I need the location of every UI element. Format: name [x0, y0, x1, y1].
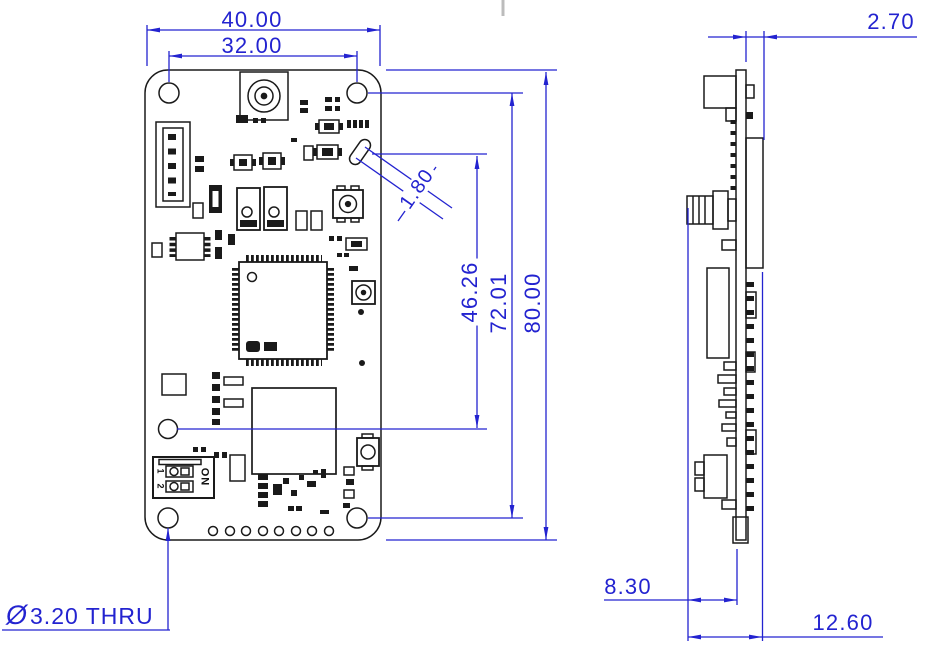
capacitors — [193, 185, 322, 230]
smd-components-left — [162, 372, 243, 425]
mounting-hole-bottom-left — [158, 508, 178, 528]
dim-hole-callout: Ø3.20 THRU — [6, 602, 154, 629]
side-left-components — [718, 120, 736, 509]
tact-switches — [230, 120, 343, 170]
side-right-block — [746, 138, 763, 268]
slot-hole — [347, 137, 372, 167]
dim-overall-depth: 12.60 — [812, 612, 873, 634]
mounting-hole-bottom-right — [347, 508, 367, 528]
side-view — [687, 70, 763, 543]
dip-pos1-label: 1 — [156, 468, 165, 473]
chip-logo — [246, 341, 260, 352]
dim-component-depth: 8.30 — [604, 576, 652, 598]
dimension-lines — [2, 25, 917, 641]
mounting-hole-mid-left — [159, 420, 178, 439]
dim-slot-offset: 46.26 — [459, 258, 481, 325]
pcb-drawing-svg — [0, 0, 944, 652]
pin1-indicator — [248, 273, 257, 282]
side-sma-connector — [687, 191, 736, 229]
coax-connector — [333, 186, 363, 222]
through-hole-row — [209, 527, 334, 536]
hole-callout-text: 3.20 THRU — [30, 603, 154, 629]
smd-components-outline — [230, 238, 367, 498]
shield-module — [252, 388, 336, 474]
side-pin-header — [707, 268, 729, 358]
push-button — [357, 434, 379, 470]
antenna-connector — [240, 72, 288, 120]
mounting-hole-top-left — [159, 83, 179, 103]
side-dip-switch — [695, 455, 727, 498]
soic8-ic — [152, 233, 207, 260]
diameter-symbol: Ø — [6, 600, 28, 630]
mounting-hole-top-right — [347, 83, 367, 103]
front-view — [145, 70, 381, 540]
qfp-ic — [236, 259, 331, 363]
side-right-components — [746, 112, 756, 512]
pin-header — [156, 122, 190, 207]
dip-pos2-label: 2 — [156, 483, 165, 488]
dim-hole-pitch-height: 72.01 — [488, 272, 510, 333]
dip-on-label: ON — [199, 468, 210, 487]
drawing-canvas: 40.00 32.00 80.00 72.01 46.26 1.80 Ø3.20… — [0, 0, 944, 652]
dim-overall-width: 40.00 — [221, 9, 282, 31]
dim-overall-height: 80.00 — [522, 272, 544, 333]
side-pcb — [736, 70, 746, 540]
rf-connector-small — [352, 281, 375, 366]
dim-hole-pitch-width: 32.00 — [221, 35, 282, 57]
dim-connector-offset: 2.70 — [867, 11, 915, 33]
